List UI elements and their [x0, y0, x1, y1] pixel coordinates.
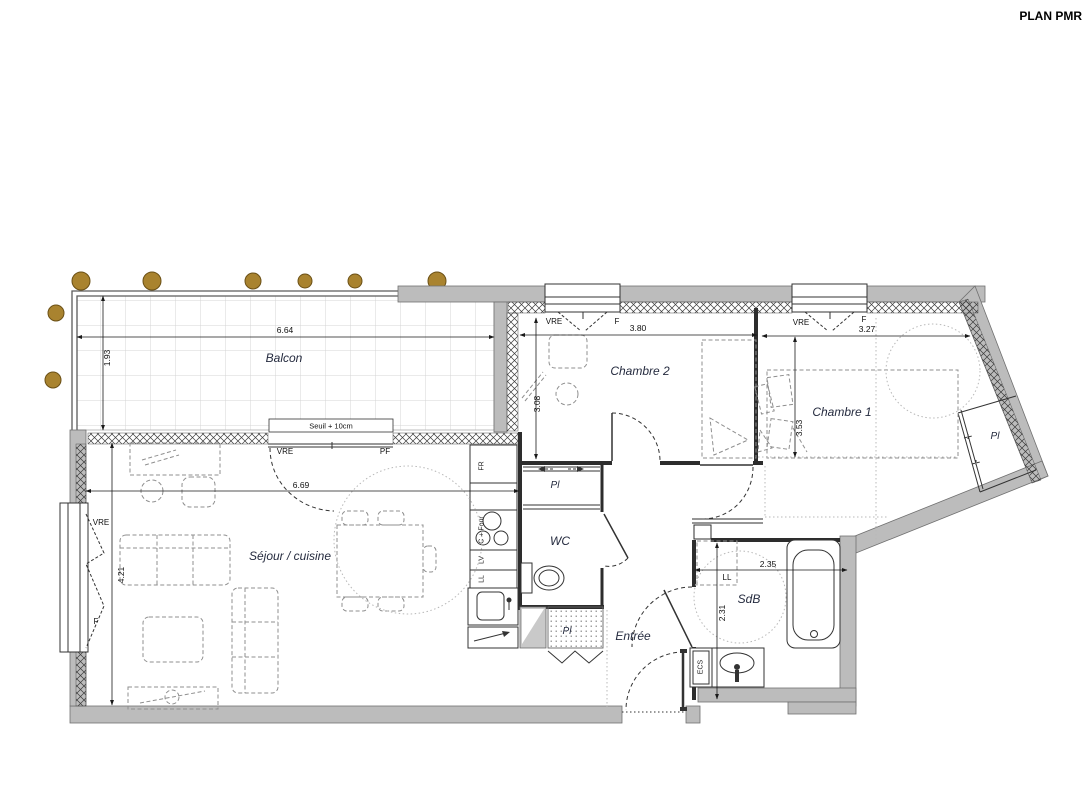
floor-plan-drawing	[0, 0, 1090, 800]
sdb-washbasin	[712, 648, 764, 687]
kitchen-dishwasher-label: LV	[479, 556, 486, 564]
entree-label: Entrée	[615, 630, 650, 642]
kitchen-fridge-label: FR	[479, 461, 486, 470]
wc-toilet	[521, 563, 564, 593]
balcony-depth-dim: 1.93	[103, 350, 112, 367]
sdb-column	[694, 525, 711, 539]
chambre2-label: Chambre 2	[610, 365, 669, 377]
sejour-label: Séjour / cuisine	[249, 550, 331, 562]
sdb-water-heater-label: ECS	[698, 660, 705, 674]
sdb-washer-label: LL	[723, 574, 732, 582]
chambre2-width-dim: 3.80	[630, 324, 647, 333]
entree-closet-label: Pl	[563, 627, 572, 637]
sejour-bay-vre-label: VRE	[277, 448, 293, 456]
threshold-label: Seuil + 10cm	[309, 422, 353, 430]
plan-title: PLAN PMR	[1019, 9, 1082, 23]
sejour-depth-dim: 4.21	[117, 567, 126, 584]
chambre1-label: Chambre 1	[812, 406, 871, 418]
kitchen-washer-label: LL	[479, 575, 486, 583]
chambre1-window-vre-label: VRE	[793, 319, 809, 327]
balcony-label: Balcon	[266, 352, 303, 364]
sdb-bathtub	[787, 540, 840, 648]
wc-closet-label: Pl	[551, 481, 560, 491]
chambre2-window-vre-label: VRE	[546, 318, 562, 326]
chambre1-depth-dim: 3.53	[795, 420, 804, 437]
sejour-side-vre-label: VRE	[93, 519, 109, 527]
chambre1-window-f-label: F	[862, 316, 867, 324]
sejour-bay-pf-label: PF	[380, 448, 390, 456]
sdb-depth-dim: 2.31	[718, 605, 727, 622]
closet-kitchen-rails	[523, 466, 600, 509]
kitchen-units	[468, 445, 518, 648]
sdb-label: SdB	[738, 593, 761, 605]
chambre1-closet-label: Pl	[991, 432, 1000, 442]
kitchen-cooktop-oven-label: C + Four	[479, 516, 486, 543]
chambre2-depth-dim: 3.08	[533, 396, 542, 413]
sdb-width-dim: 2.35	[760, 560, 777, 569]
chambre2-window-f-label: F	[615, 318, 620, 326]
closet-entree	[520, 607, 603, 663]
balcony-width-dim: 6.64	[277, 326, 294, 335]
sejour-width-dim: 6.69	[293, 481, 310, 490]
wc-label: WC	[550, 535, 570, 547]
floor-plan-page: PLAN PMR Balcon 6.64 1.93 Seuil + 10cm C…	[0, 0, 1090, 800]
chambre1-width-dim: 3.27	[859, 325, 876, 334]
sejour-side-f-label: F	[94, 618, 99, 626]
